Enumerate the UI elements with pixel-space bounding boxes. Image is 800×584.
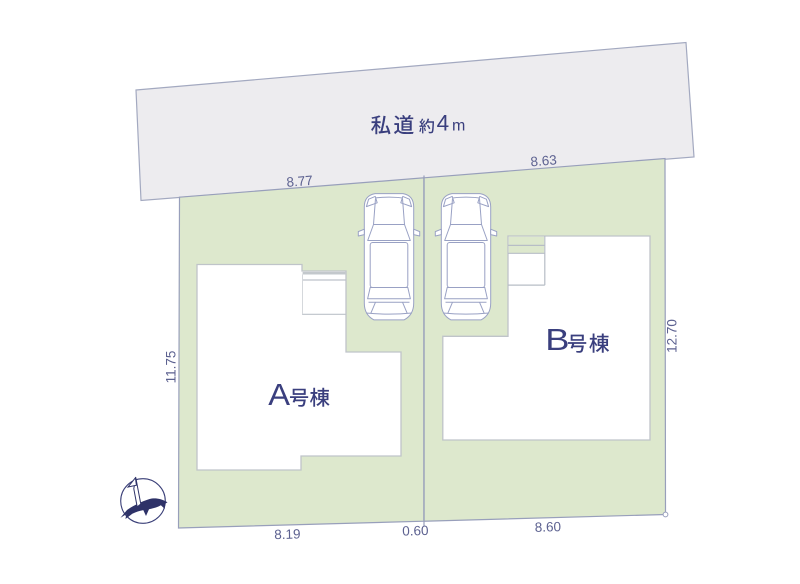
svg-text:8.19: 8.19 — [274, 526, 301, 542]
svg-text:B: B — [545, 323, 569, 357]
svg-text:8.63: 8.63 — [530, 152, 557, 169]
svg-text:8.77: 8.77 — [286, 173, 313, 190]
svg-text:4: 4 — [437, 111, 450, 136]
svg-text:0.60: 0.60 — [402, 523, 429, 539]
svg-text:12.70: 12.70 — [665, 319, 680, 353]
svg-text:m: m — [452, 118, 465, 135]
svg-text:11.75: 11.75 — [164, 351, 179, 384]
svg-text:8.60: 8.60 — [535, 519, 562, 535]
svg-text:A: A — [268, 377, 291, 412]
